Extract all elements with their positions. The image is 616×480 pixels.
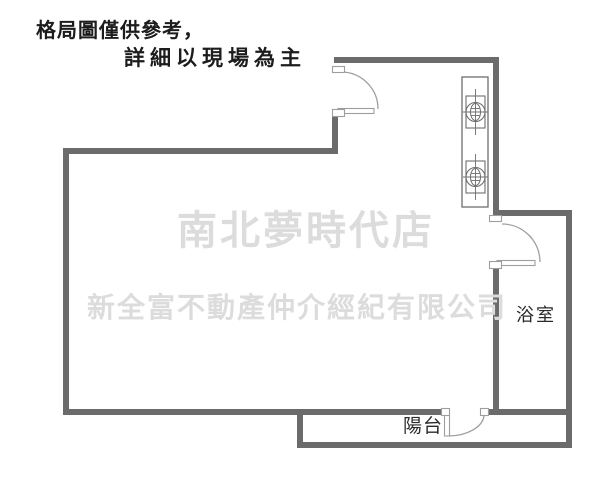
gas-stove-2-burner-icon [462, 77, 488, 207]
room-label-bathroom: 浴室 [516, 306, 556, 324]
stove-burner-bottom [463, 154, 488, 200]
bathroom-door-post-top [490, 216, 502, 222]
room-label-balcony: 陽台 [403, 417, 443, 436]
bathroom-door-arc [502, 224, 540, 262]
floor-plan-page: 格局圖僅供參考， 詳細以現場為主 南北夢時代店 新全富不動產仲介經紀有限公司 浴… [0, 0, 616, 480]
balcony-door-post-right [481, 409, 489, 416]
balcony-door-post-left [442, 409, 450, 416]
balcony-door-icon [442, 409, 489, 437]
disclaimer-line-1: 格局圖僅供參考， [36, 21, 204, 41]
disclaimer-line-2: 詳細以現場為主 [124, 48, 306, 69]
stove-burner-top [463, 89, 488, 135]
bathroom-door-leaf [497, 261, 535, 266]
watermark-store-name: 南北夢時代店 [177, 211, 435, 251]
balcony-door-arc [449, 416, 484, 436]
entrance-door-post-top [333, 67, 345, 73]
entrance-door-post-bottom [333, 110, 345, 117]
balcony-door-leaf [445, 415, 450, 436]
bathroom-door-icon [490, 216, 541, 269]
bathroom-door-post-bottom [490, 262, 502, 269]
entrance-door-icon [333, 67, 379, 117]
watermark-company-name: 新全富不動產仲介經紀有限公司 [87, 295, 507, 323]
entrance-door-arc [341, 72, 378, 109]
